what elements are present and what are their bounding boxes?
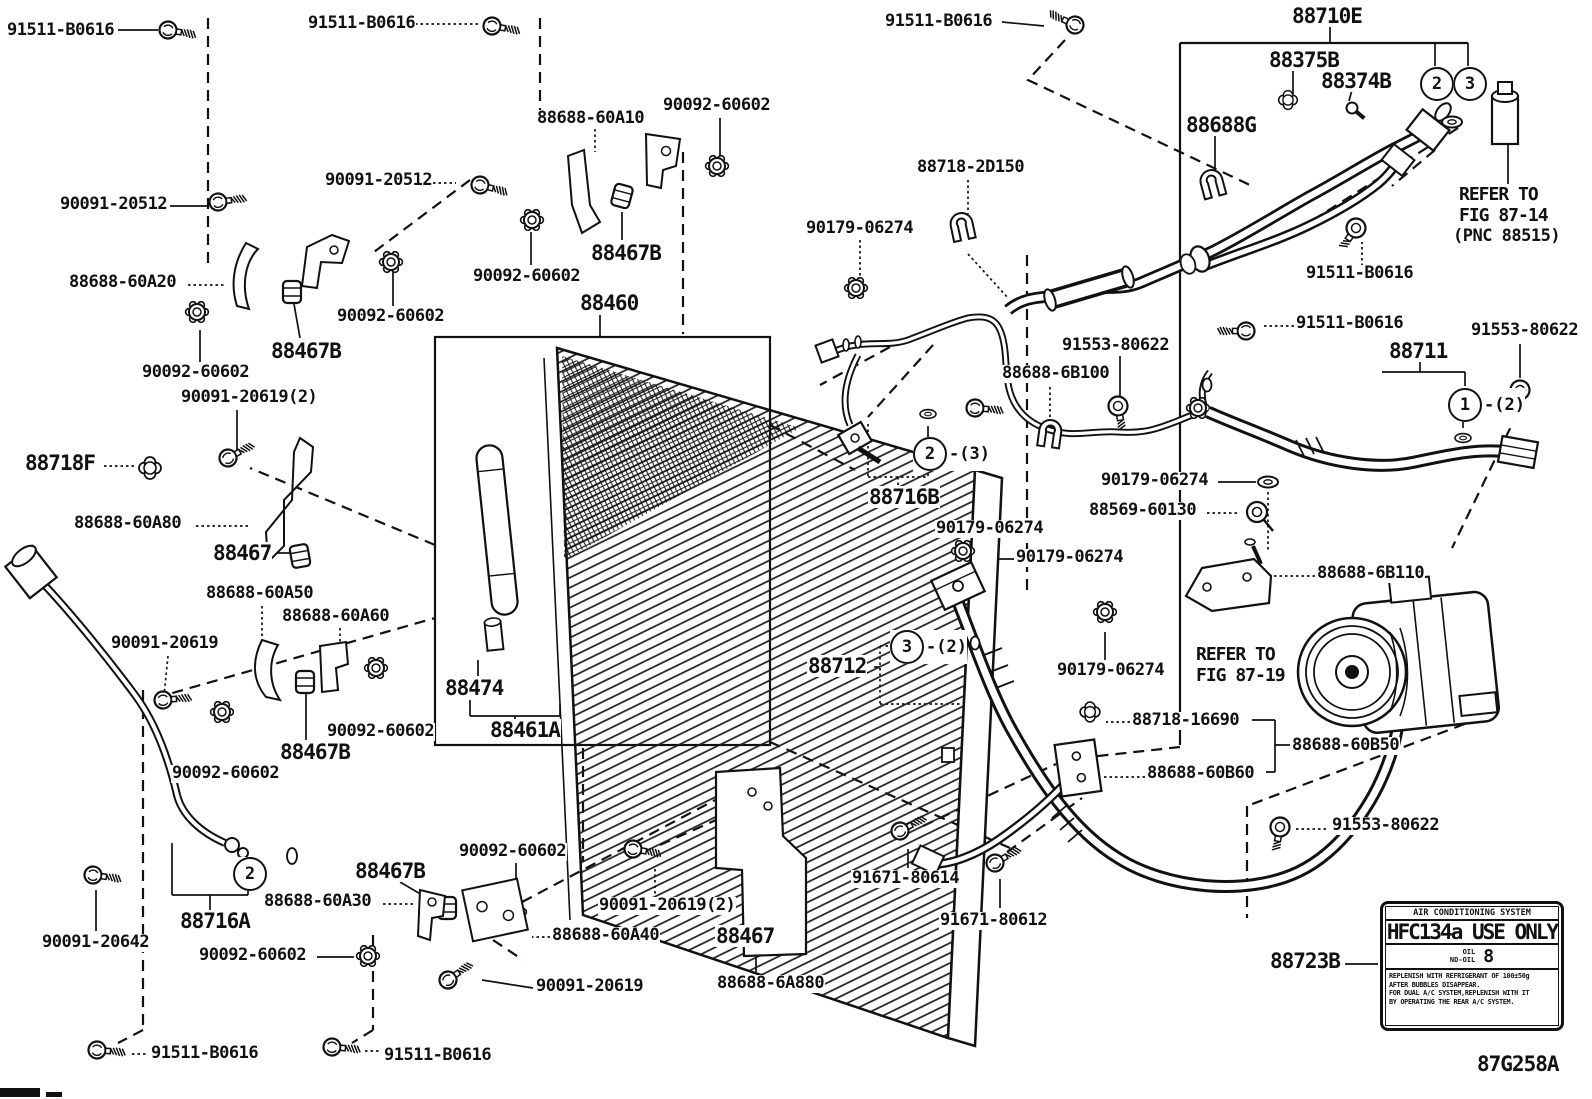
grommet-88375B <box>1279 91 1298 110</box>
label-91511-B0616: 91511-B0616 <box>1295 315 1404 333</box>
refer-to-fig-87-19-line2: FIG 87-19 <box>1195 667 1286 686</box>
refer-to-fig-87-14-line2: FIG 87-14 <box>1458 207 1549 226</box>
label-88467B: 88467B <box>270 340 342 362</box>
label-88467: 88467 <box>715 925 775 947</box>
label-88688-60B60: 88688-60B60 <box>1146 765 1255 783</box>
label-91511-B0616: 91511-B0616 <box>383 1047 492 1065</box>
label-88718-2D150: 88718-2D150 <box>916 159 1025 177</box>
grommet-88569-60130 <box>1247 502 1273 531</box>
label-90091-20512: 90091-20512 <box>324 172 433 190</box>
refer-to-fig-87-14-line3: (PNC 88515) <box>1452 228 1561 246</box>
sticker-note-2: AFTER BUBBLES DISAPPEAR. <box>1389 981 1555 989</box>
label-90092-60602: 90092-60602 <box>336 308 445 326</box>
label-90092-60602: 90092-60602 <box>141 364 250 382</box>
label-90091-20642: 90091-20642 <box>41 934 150 952</box>
callout-3: 3 <box>1453 67 1489 101</box>
label-88375B: 88375B <box>1268 49 1340 71</box>
label-88688G: 88688G <box>1185 114 1257 136</box>
callout-1-2: 1 -(2) <box>1448 388 1525 422</box>
figure-code: 87G258A <box>1476 1053 1560 1075</box>
label-88688-6B100: 88688-6B100 <box>1001 365 1110 383</box>
refer-to-fig-87-14: REFER TO <box>1458 186 1539 205</box>
label-88711: 88711 <box>1388 340 1448 362</box>
label-88718F: 88718F <box>24 452 96 474</box>
label-91671-80614: 91671-80614 <box>851 870 960 888</box>
label-88374B: 88374B <box>1320 70 1392 92</box>
label-88467: 88467 <box>212 542 272 564</box>
label-91511-B0616: 91511-B0616 <box>150 1045 259 1063</box>
label-88460: 88460 <box>579 292 639 314</box>
corner-print-fragment <box>0 1088 62 1097</box>
label-88467B: 88467B <box>354 860 426 882</box>
label-88688-60A80: 88688-60A80 <box>73 515 182 533</box>
bracket-88688-60B60 <box>1055 739 1102 796</box>
label-90091-20619-2: 90091-20619(2) <box>598 897 736 915</box>
label-90179-06274: 90179-06274 <box>1015 549 1124 567</box>
label-90092-60602: 90092-60602 <box>458 843 567 861</box>
parts-diagram-canvas: 91511-B0616 91511-B0616 91511-B0616 8871… <box>0 0 1592 1099</box>
sticker-note-1: REPLENISH WITH REFRIGERANT OF 100±50g <box>1389 972 1555 980</box>
label-88688-60A30: 88688-60A30 <box>263 893 372 911</box>
label-88718-16690: 88718-16690 <box>1131 712 1240 730</box>
label-90091-20619: 90091-20619 <box>110 635 219 653</box>
label-88688-60B50: 88688-60B50 <box>1291 737 1400 755</box>
clamp-88688G <box>1198 168 1226 200</box>
bracket-88688-6B110 <box>1186 539 1271 611</box>
callout-circle: 3 <box>1453 67 1487 101</box>
refer-to-fig-87-19: REFER TO <box>1195 646 1276 665</box>
callout-circle: 3 <box>890 630 924 664</box>
label-90092-60602: 90092-60602 <box>326 723 435 741</box>
label-90091-20619: 90091-20619 <box>535 978 644 996</box>
stud-bolt-88374B <box>1344 100 1368 122</box>
label-90179-06274: 90179-06274 <box>935 520 1044 538</box>
label-90092-60602: 90092-60602 <box>198 947 307 965</box>
callout-circle: 1 <box>1448 388 1482 422</box>
label-90092-60602: 90092-60602 <box>662 97 771 115</box>
label-90179-06274: 90179-06274 <box>1100 472 1209 490</box>
label-88688-6B110: 88688-6B110 <box>1316 565 1425 583</box>
label-91553-80622: 91553-80622 <box>1061 337 1170 355</box>
label-88688-60A60: 88688-60A60 <box>281 608 390 626</box>
label-88688-60A50: 88688-60A50 <box>205 585 314 603</box>
label-88688-60A10: 88688-60A10 <box>536 110 645 128</box>
label-90092-60602: 90092-60602 <box>472 268 581 286</box>
label-90179-06274: 90179-06274 <box>1056 662 1165 680</box>
callout-circle: 2 <box>233 857 267 891</box>
label-88461A: 88461A <box>489 719 561 741</box>
callout-2-3: 2 -(3) <box>913 437 990 471</box>
label-88712: 88712 <box>807 655 867 677</box>
label-88688-60A20: 88688-60A20 <box>68 274 177 292</box>
sticker-oil-value: 8 <box>1483 946 1494 967</box>
callout-suffix: -(2) <box>926 637 967 657</box>
sticker-main-text: HFC134a USE ONLY <box>1386 919 1558 945</box>
sticker-note-4: BY OPERATING THE REAR A/C SYSTEM. <box>1389 998 1555 1006</box>
label-88569-60130: 88569-60130 <box>1088 502 1197 520</box>
label-88467B: 88467B <box>279 741 351 763</box>
label-90091-20512: 90091-20512 <box>59 196 168 214</box>
callout-2b: 2 <box>233 857 269 891</box>
label-88716A: 88716A <box>179 910 251 932</box>
label-90092-60602: 90092-60602 <box>171 765 280 783</box>
label-91671-80612: 91671-80612 <box>939 912 1048 930</box>
compressor-drawing <box>1298 571 1500 734</box>
sticker-header: AIR CONDITIONING SYSTEM <box>1386 907 1558 919</box>
label-91511-B0616: 91511-B0616 <box>1305 265 1414 283</box>
label-88710E: 88710E <box>1291 5 1363 27</box>
label-88467B: 88467B <box>590 242 662 264</box>
sticker-note-3: FOR DUAL A/C SYSTEM,REPLENISH WITH IT <box>1389 989 1555 997</box>
label-90091-20619-2: 90091-20619(2) <box>180 389 318 407</box>
drier-fitting <box>484 617 503 650</box>
label-91553-80622: 91553-80622 <box>1331 817 1440 835</box>
label-88723B: 88723B <box>1269 950 1341 972</box>
callout-suffix: -(2) <box>1484 395 1525 415</box>
clamp-88718-2D150 <box>949 211 976 242</box>
clip-88718F <box>139 457 161 479</box>
label-88688-6A880: 88688-6A880 <box>716 975 825 993</box>
receiver-drier <box>475 444 519 616</box>
label-90179-06274: 90179-06274 <box>805 220 914 238</box>
label-88716B: 88716B <box>868 486 940 508</box>
label-91511-B0616: 91511-B0616 <box>6 22 115 40</box>
sticker-oil-type: ND-OIL <box>1450 957 1475 965</box>
callout-circle: 2 <box>1420 67 1454 101</box>
label-91511-B0616: 91511-B0616 <box>307 15 416 33</box>
callout-2: 2 <box>1420 67 1456 101</box>
callout-3-2: 3 -(2) <box>890 630 967 664</box>
refrigerant-sticker-88723B: AIR CONDITIONING SYSTEM HFC134a USE ONLY… <box>1380 901 1564 1031</box>
callout-circle: 2 <box>913 437 947 471</box>
label-88474: 88474 <box>444 677 504 699</box>
clip-88718-16690 <box>1080 702 1100 722</box>
label-91553-80622: 91553-80622 <box>1470 322 1579 340</box>
label-91511-B0616: 91511-B0616 <box>884 13 993 31</box>
label-88688-60A40: 88688-60A40 <box>551 927 660 945</box>
refer-fig-87-14-part <box>1492 82 1518 144</box>
callout-suffix: -(3) <box>949 444 990 464</box>
